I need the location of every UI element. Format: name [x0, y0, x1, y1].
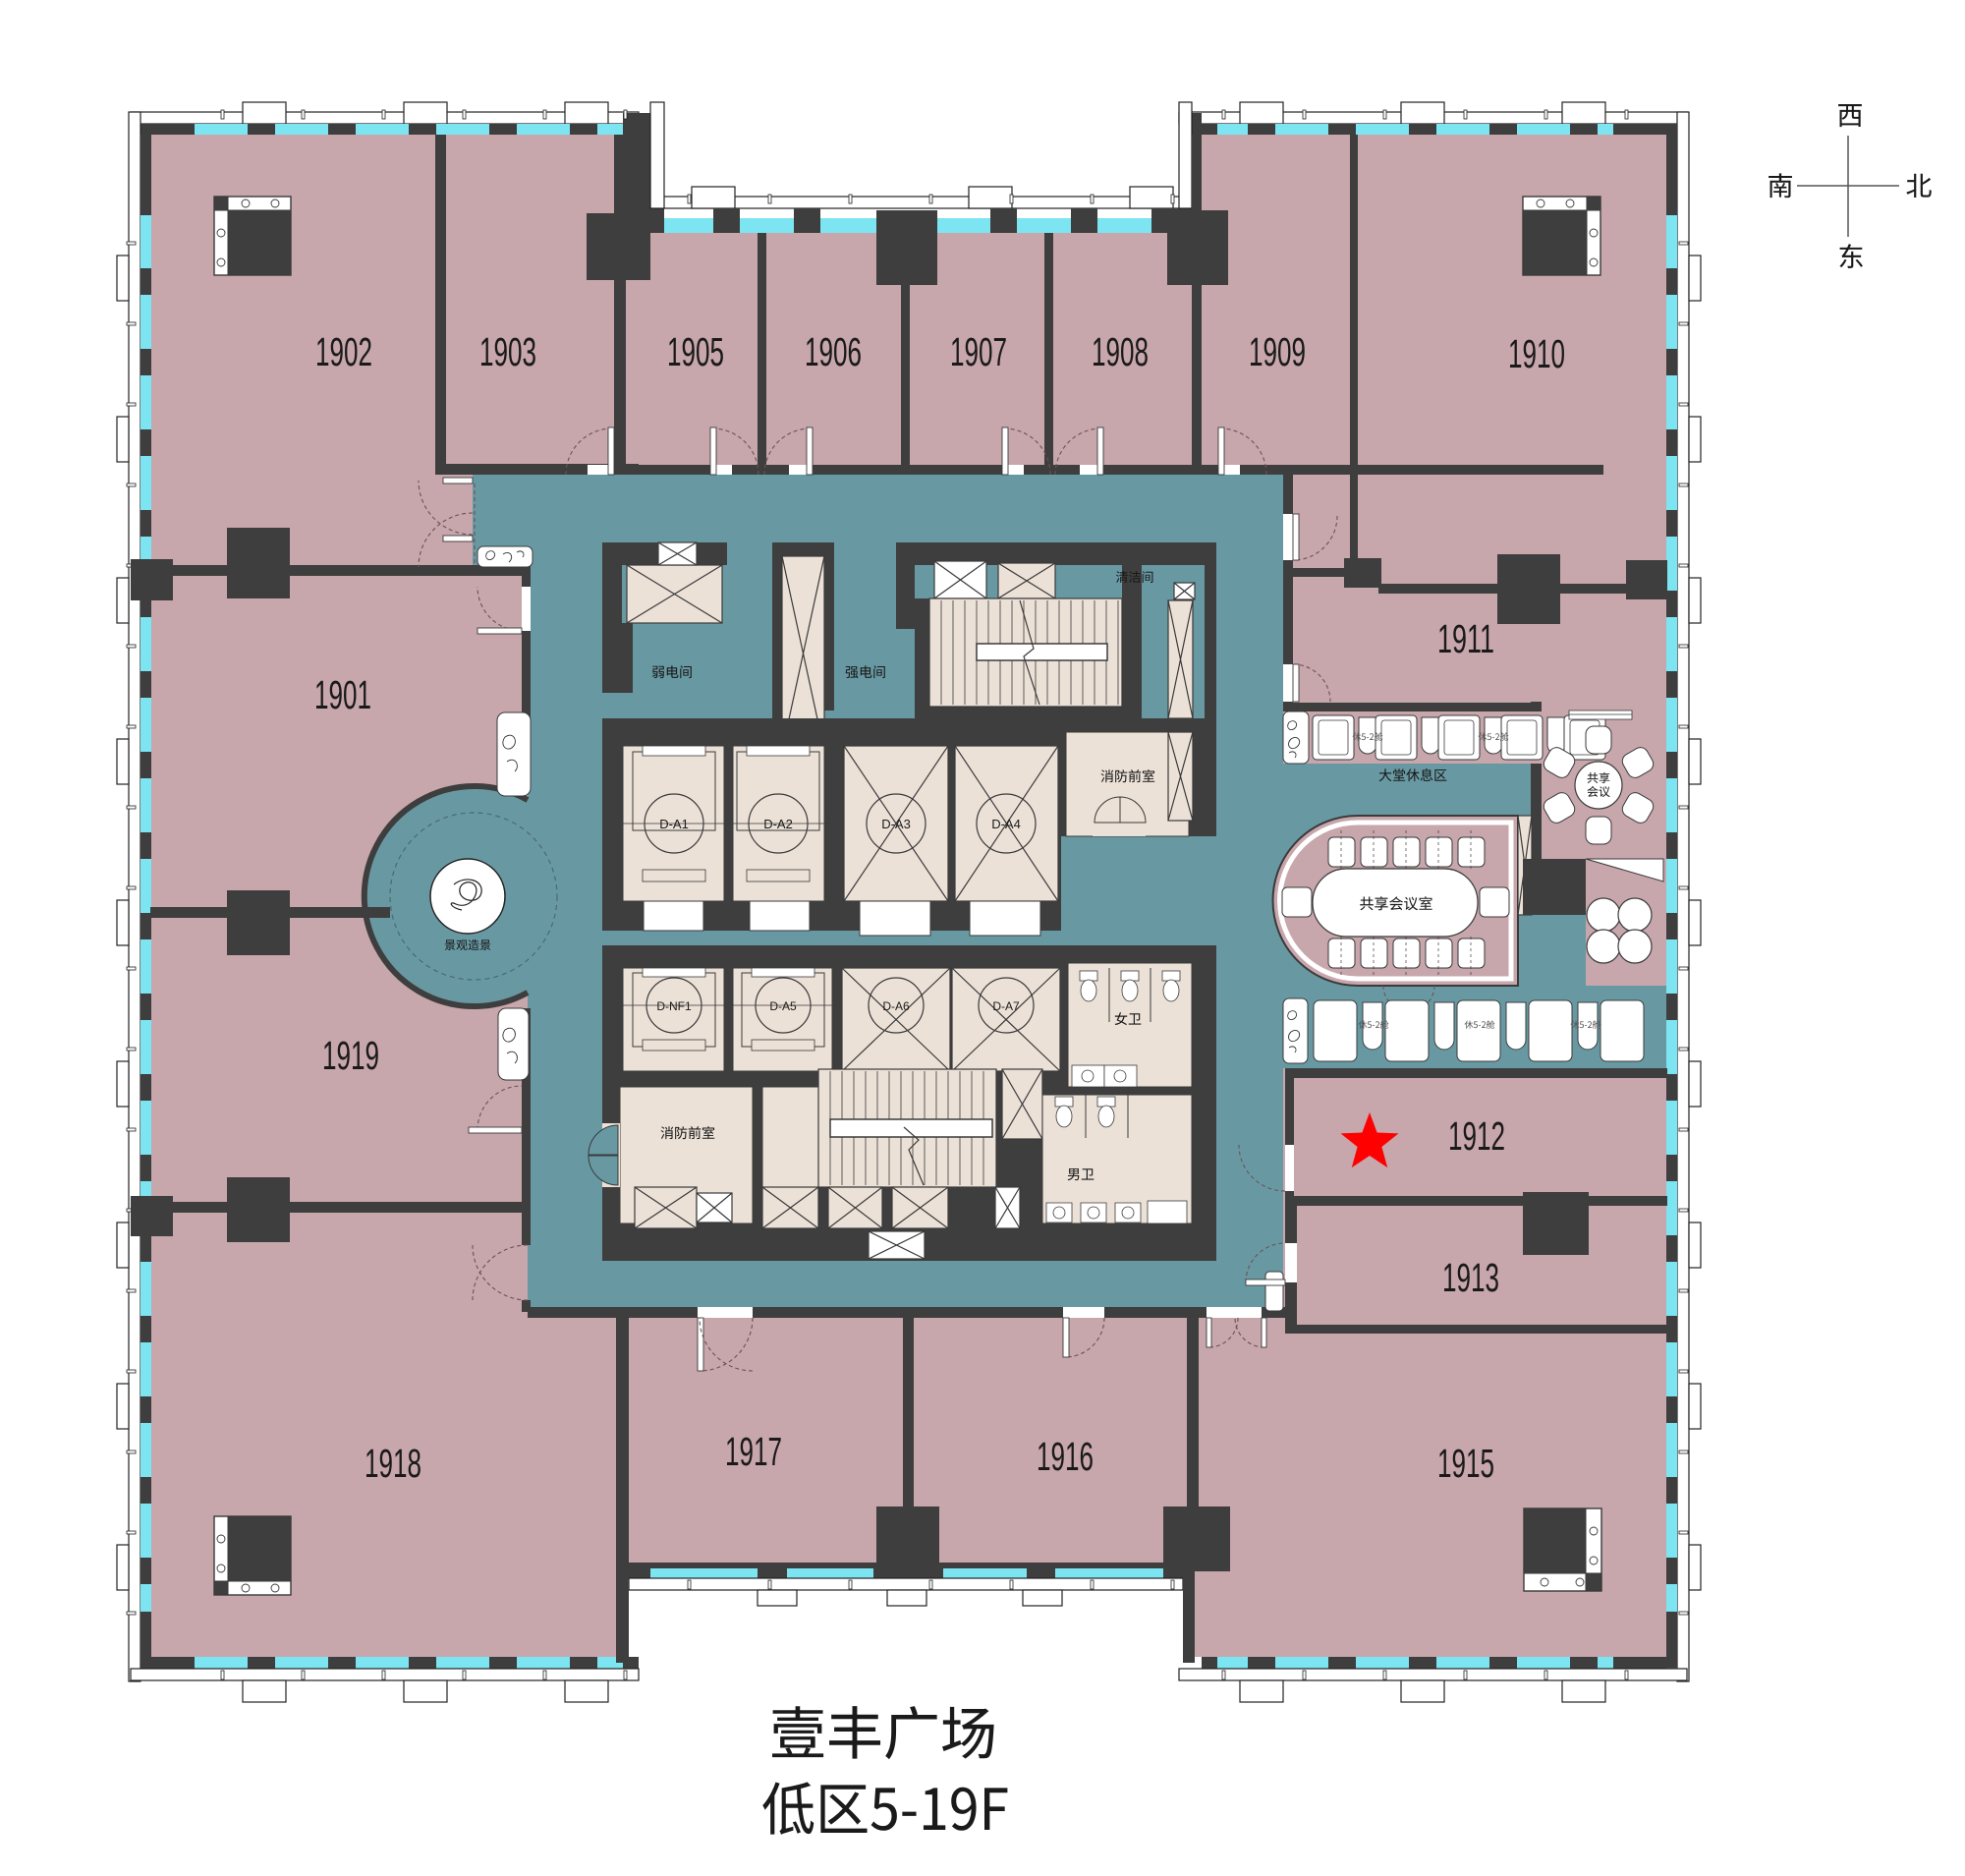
svg-text:1903: 1903 — [479, 329, 536, 374]
svg-text:D-A4: D-A4 — [991, 817, 1021, 831]
svg-text:1907: 1907 — [950, 329, 1007, 374]
svg-text:D-A7: D-A7 — [992, 999, 1020, 1013]
svg-text:D-A5: D-A5 — [769, 999, 797, 1013]
svg-text:1913: 1913 — [1442, 1255, 1499, 1300]
svg-text:1915: 1915 — [1437, 1441, 1494, 1486]
svg-text:1917: 1917 — [725, 1429, 782, 1474]
svg-text:1910: 1910 — [1508, 331, 1565, 376]
svg-text:1918: 1918 — [365, 1441, 421, 1486]
svg-text:1908: 1908 — [1092, 329, 1149, 374]
svg-text:1916: 1916 — [1037, 1434, 1094, 1479]
svg-text:D-NF1: D-NF1 — [656, 999, 692, 1013]
svg-text:D-A6: D-A6 — [882, 999, 910, 1013]
svg-text:D-A3: D-A3 — [881, 817, 911, 831]
svg-text:1919: 1919 — [322, 1033, 379, 1078]
svg-text:1902: 1902 — [315, 329, 372, 374]
svg-text:1901: 1901 — [314, 672, 371, 717]
svg-text:D-A1: D-A1 — [659, 817, 689, 831]
svg-text:1906: 1906 — [805, 329, 862, 374]
svg-text:1909: 1909 — [1249, 329, 1306, 374]
svg-text:1905: 1905 — [667, 329, 724, 374]
svg-text:D-A2: D-A2 — [763, 817, 793, 831]
svg-text:1911: 1911 — [1437, 616, 1494, 661]
svg-text:1912: 1912 — [1448, 1113, 1505, 1159]
